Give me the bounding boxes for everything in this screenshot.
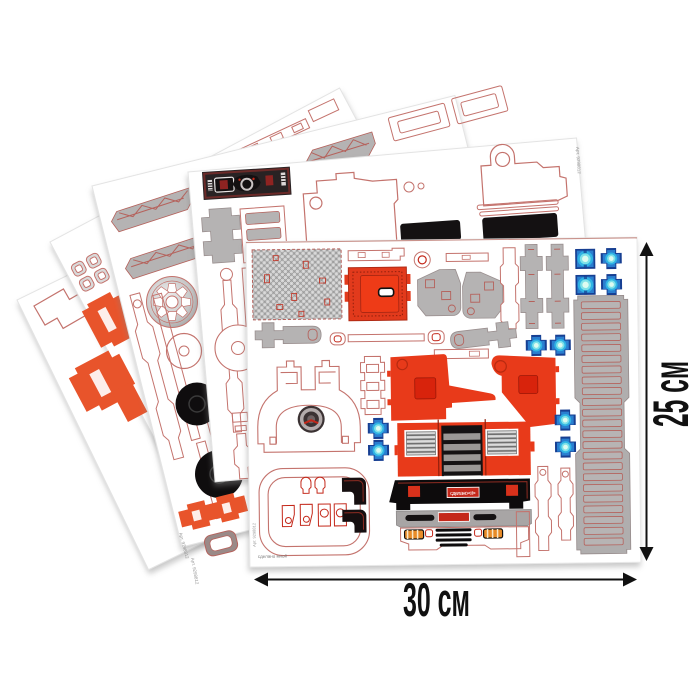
- svg-text:Арт. 9298812: Арт. 9298812: [251, 522, 256, 547]
- svg-text:сделано мной: сделано мной: [258, 553, 288, 559]
- svg-text:25 см: 25 см: [643, 361, 699, 427]
- svg-text:сделано⊲⊳: сделано⊲⊳: [450, 491, 476, 497]
- svg-text:30 см: 30 см: [403, 573, 470, 626]
